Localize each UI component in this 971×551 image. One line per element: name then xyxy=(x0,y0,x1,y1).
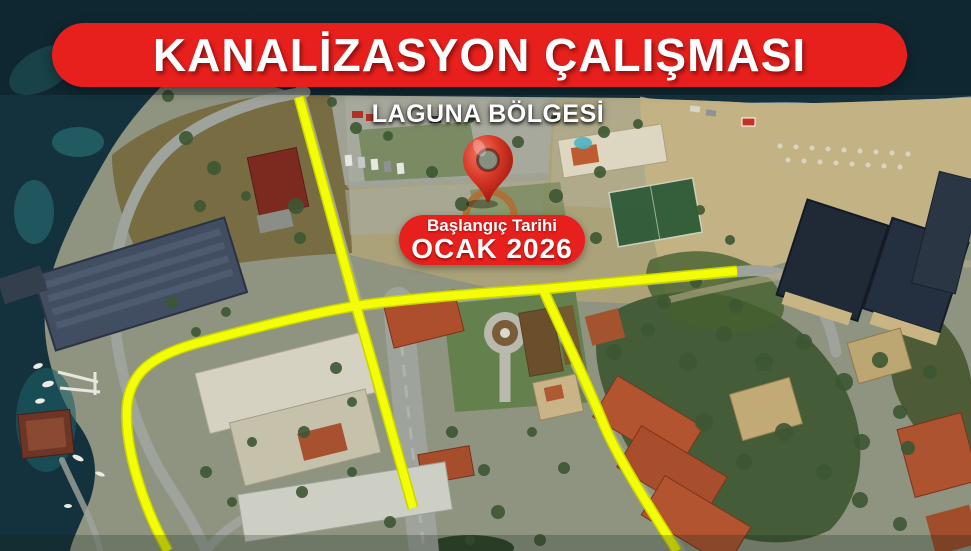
location-pin-icon xyxy=(458,131,518,211)
region-label: LAGUNA BÖLGESİ xyxy=(268,100,708,129)
start-date-badge: Başlangıç Tarihi OCAK 2026 xyxy=(399,215,585,265)
headline-text: KANALİZASYON ÇALIŞMASI xyxy=(153,28,806,82)
infographic-canvas: KANALİZASYON ÇALIŞMASI LAGUNA BÖLGESİ Ba… xyxy=(0,0,971,551)
headline-banner: KANALİZASYON ÇALIŞMASI xyxy=(52,23,907,87)
start-date-label: Başlangıç Tarihi xyxy=(427,217,557,235)
start-date-value: OCAK 2026 xyxy=(411,235,573,264)
